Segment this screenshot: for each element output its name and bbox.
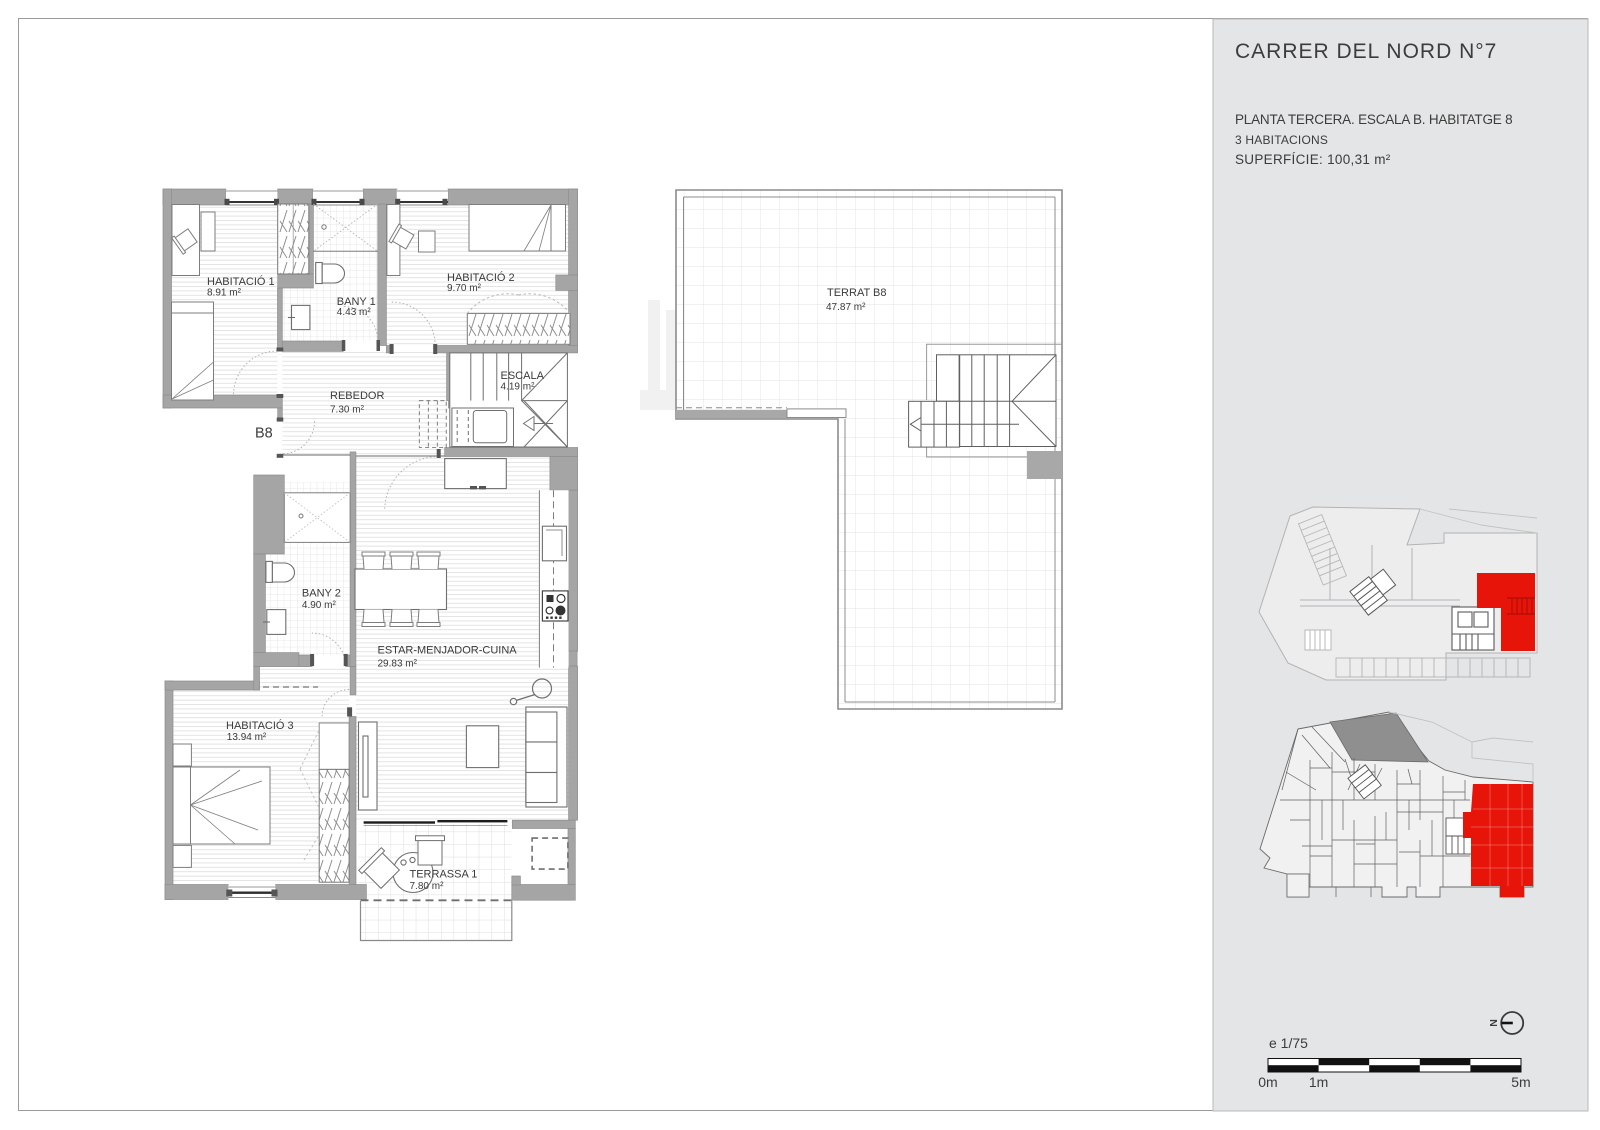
svg-text:HABITACIÓ 3: HABITACIÓ 3 — [226, 719, 294, 732]
svg-text:REBEDOR: REBEDOR — [330, 390, 384, 402]
svg-text:HABITACIÓ 1: HABITACIÓ 1 — [207, 275, 275, 288]
svg-text:8.91 m²: 8.91 m² — [207, 288, 242, 299]
svg-text:e 1/75: e 1/75 — [1269, 1035, 1308, 1051]
svg-text:CARRER DEL NORD N°7: CARRER DEL NORD N°7 — [1235, 40, 1497, 63]
svg-text:3 HABITACIONS: 3 HABITACIONS — [1235, 133, 1328, 147]
svg-text:ESCALA: ESCALA — [501, 370, 545, 382]
svg-text:SUPERFÍCIE: 100,31 m²: SUPERFÍCIE: 100,31 m² — [1235, 152, 1391, 167]
svg-text:ESTAR-MENJADOR-CUINA: ESTAR-MENJADOR-CUINA — [378, 645, 518, 657]
svg-text:0m: 0m — [1258, 1074, 1277, 1090]
svg-text:5m: 5m — [1511, 1074, 1530, 1090]
svg-text:4.43 m²: 4.43 m² — [337, 307, 372, 318]
svg-text:N: N — [1488, 1019, 1500, 1027]
svg-text:4.90 m²: 4.90 m² — [302, 600, 337, 611]
svg-text:9.70 m²: 9.70 m² — [447, 283, 482, 294]
svg-text:7.30 m²: 7.30 m² — [330, 405, 365, 416]
svg-text:7.80 m²: 7.80 m² — [410, 881, 445, 892]
svg-text:B8: B8 — [255, 426, 273, 442]
svg-text:BANY 2: BANY 2 — [302, 588, 341, 600]
svg-text:PLANTA TERCERA. ESCALA B. HABI: PLANTA TERCERA. ESCALA B. HABITATGE 8 — [1235, 112, 1512, 127]
svg-text:TERRAT B8: TERRAT B8 — [827, 287, 887, 299]
svg-text:4.19 m²: 4.19 m² — [501, 382, 536, 393]
svg-text:47.87 m²: 47.87 m² — [826, 302, 866, 313]
svg-text:29.83 m²: 29.83 m² — [378, 659, 418, 670]
svg-text:1m: 1m — [1309, 1074, 1328, 1090]
svg-text:TERRASSA 1: TERRASSA 1 — [410, 869, 478, 881]
svg-text:13.94 m²: 13.94 m² — [227, 732, 267, 743]
